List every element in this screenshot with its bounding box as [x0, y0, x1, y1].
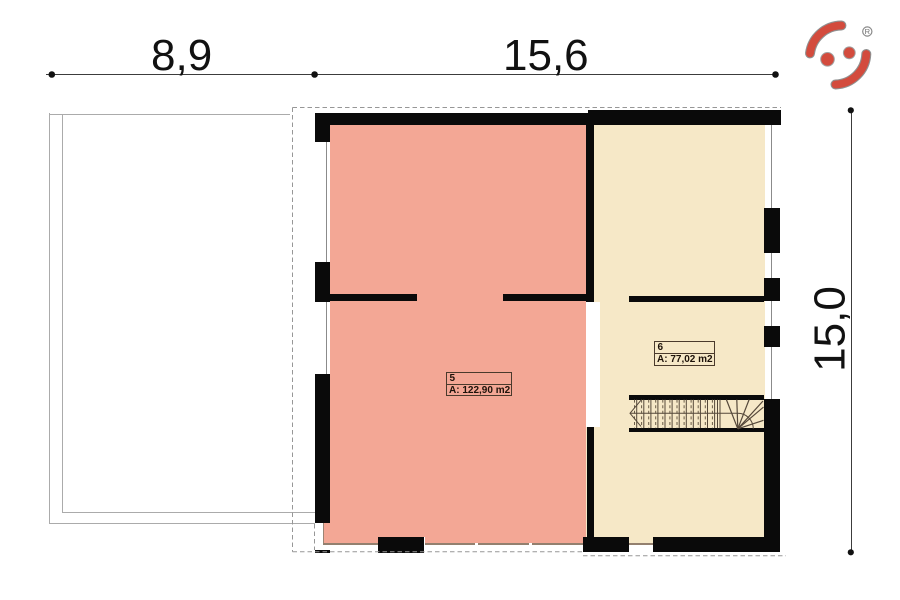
svg-text:R: R	[865, 27, 871, 36]
